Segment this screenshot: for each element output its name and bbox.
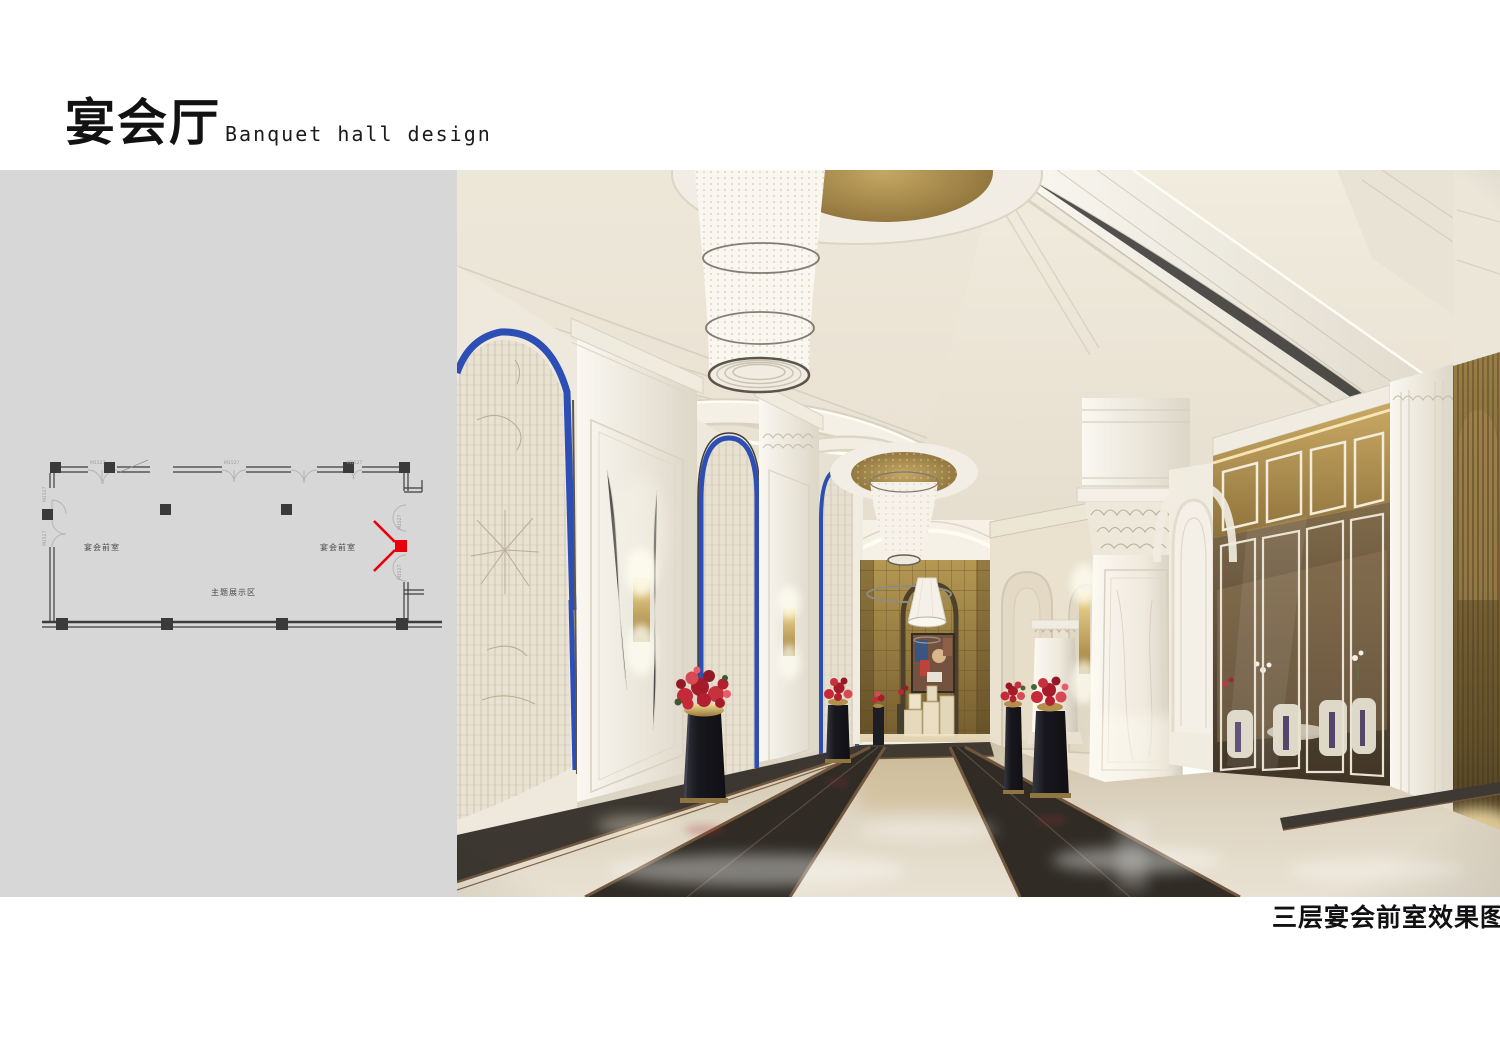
plan-door-arcs xyxy=(52,470,406,581)
svg-text:M1527: M1527 xyxy=(224,460,239,466)
rendering-image xyxy=(457,170,1500,897)
room-label-center: 主题展示区 xyxy=(211,587,256,597)
rendering-caption: 三层宴会前室效果图 xyxy=(1272,898,1464,934)
presentation-board: 宴会厅 Banquet hall design xyxy=(0,0,1500,1060)
svg-text:M1527: M1527 xyxy=(397,565,403,580)
svg-text:M1527: M1527 xyxy=(90,460,105,466)
room-label-left: 宴会前室 xyxy=(84,542,120,552)
floor-plan-panel: M1527 M1527 M1527 M1527 M1527 M1527 M152… xyxy=(0,170,457,897)
title-english: Banquet hall design xyxy=(225,122,492,148)
svg-text:M1527: M1527 xyxy=(397,515,403,530)
plan-door-labels: M1527 M1527 M1527 M1527 M1527 M1527 M152… xyxy=(42,460,403,580)
room-label-right: 宴会前室 xyxy=(320,542,356,552)
svg-text:M1527: M1527 xyxy=(42,531,48,546)
plan-room-labels: 宴会前室 宴会前室 主题展示区 xyxy=(84,542,356,597)
svg-text:M1527: M1527 xyxy=(42,487,48,502)
floor-plan-drawing: M1527 M1527 M1527 M1527 M1527 M1527 M152… xyxy=(0,170,457,897)
svg-text:M1527: M1527 xyxy=(347,460,362,466)
title-chinese: 宴会厅 xyxy=(65,98,221,148)
page-header: 宴会厅 Banquet hall design xyxy=(65,98,492,148)
